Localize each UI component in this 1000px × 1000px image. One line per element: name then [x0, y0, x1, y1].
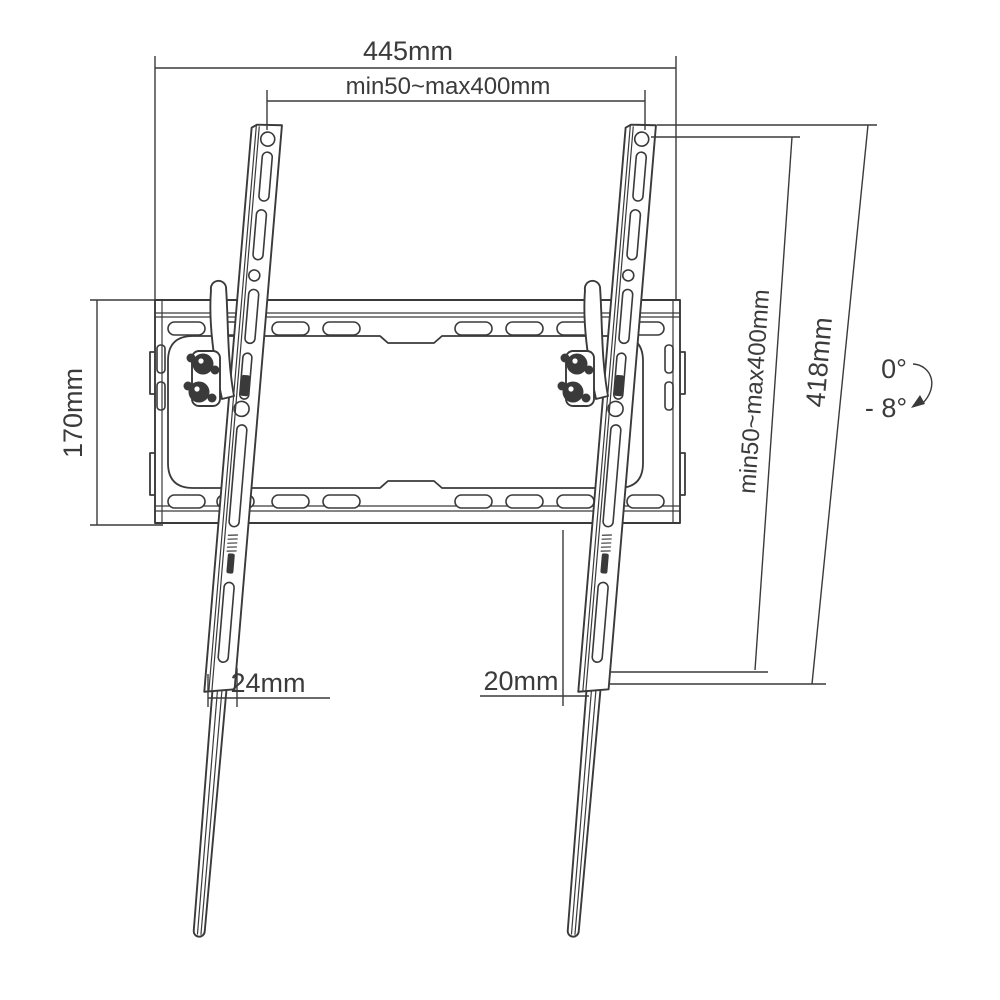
right-tv-rail	[558, 123, 656, 938]
technical-drawing-canvas: 445mm min50~max400mm 170mm min50~max400m…	[0, 0, 1000, 1000]
tilt-label-to: - 8°	[865, 393, 907, 423]
left-tv-rail	[184, 123, 282, 938]
dim-label-top-hole-pitch: min50~max400mm	[346, 73, 551, 100]
dim-label-top-width: 445mm	[363, 36, 453, 66]
dim-label-left-height: 170mm	[58, 368, 88, 458]
dim-top-hole-pitch: min50~max400mm	[267, 73, 645, 130]
tilt-indicator: 0° - 8°	[865, 354, 932, 423]
wall-mount-diagram: 445mm min50~max400mm 170mm min50~max400m…	[0, 0, 1000, 1000]
dim-left-height: 170mm	[58, 300, 163, 525]
tilt-label-from: 0°	[881, 354, 907, 384]
dim-label-bottom-left: 24mm	[230, 668, 305, 698]
dim-label-bottom-right: 20mm	[483, 666, 558, 696]
dim-label-right-length: 418mm	[800, 316, 838, 408]
dim-bottom-right: 20mm	[480, 530, 589, 706]
tilt-arrowhead	[911, 395, 925, 408]
